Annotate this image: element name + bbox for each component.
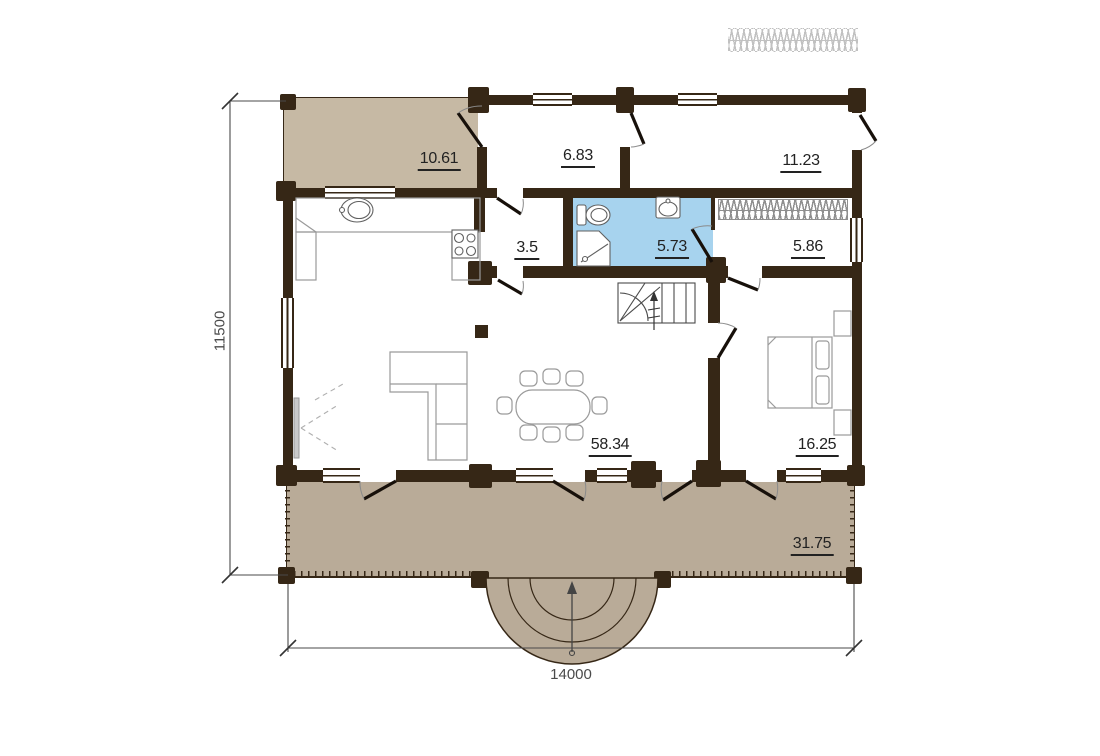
window [533, 93, 572, 106]
room-area-label: 58.34 [589, 436, 632, 457]
terrace-top-floor [283, 97, 478, 188]
door-leaf [718, 328, 736, 358]
wall-segment [585, 470, 597, 482]
room-area-label: 3.5 [514, 239, 539, 260]
log-post [616, 87, 634, 113]
log-post [696, 460, 721, 487]
wall-segment [711, 197, 715, 230]
log-post [278, 567, 295, 584]
tv [294, 384, 343, 458]
bathroom-floor [573, 197, 713, 266]
wall-segment [762, 266, 862, 278]
door-leaf [728, 278, 758, 290]
log-post [469, 464, 492, 488]
dimension-label-horizontal: 14000 [550, 666, 592, 683]
terrace-railing-bottom-right [658, 571, 854, 578]
door-leaf [631, 113, 644, 144]
room-area-label: 5.86 [791, 238, 825, 259]
log-post [280, 94, 296, 110]
entrance-steps [486, 578, 658, 664]
terrace-bottom-floor [286, 482, 855, 578]
floor-plan: 10.61 6.83 11.23 3.5 5.73 5.86 58.34 16.… [0, 0, 1100, 756]
log-post [468, 87, 489, 113]
log-post [276, 465, 297, 486]
stove [452, 230, 478, 258]
kitchen-counter [296, 198, 480, 280]
room-area-label: 6.83 [561, 147, 595, 168]
log-post [846, 567, 862, 584]
pergola-hatch [728, 28, 858, 52]
log-post [654, 571, 671, 588]
door-leaf [497, 198, 521, 214]
log-post [848, 88, 866, 112]
dining-table [497, 369, 607, 442]
window [597, 468, 627, 483]
window [850, 218, 863, 262]
dimension-vertical [222, 93, 288, 583]
log-post [276, 181, 296, 201]
wall-segment [283, 368, 293, 470]
plan-linework [0, 0, 1100, 756]
wall-segment [563, 197, 573, 268]
wall-segment [477, 147, 487, 188]
door-leaf [498, 280, 522, 294]
kitchen-sink [340, 198, 374, 222]
bed [768, 337, 832, 408]
nightstand [834, 311, 851, 336]
log-post [706, 257, 726, 283]
door-leaf [860, 115, 876, 141]
window [786, 468, 821, 483]
window [323, 468, 360, 483]
room-area-label: 5.73 [655, 238, 689, 259]
wall-segment [283, 185, 293, 298]
terrace-railing-right [850, 483, 855, 573]
log-post [471, 571, 489, 588]
sofa [390, 352, 467, 460]
wall-segment [523, 266, 711, 278]
wall-segment [474, 198, 485, 232]
dimension-label-vertical: 11500 [212, 311, 229, 352]
window [325, 186, 395, 199]
window [281, 298, 294, 368]
staircase [618, 283, 695, 330]
room-area-label: 11.23 [780, 152, 821, 173]
wall-segment [852, 150, 862, 218]
wall-segment [708, 278, 720, 323]
dimension-horizontal [280, 584, 862, 656]
wall-segment [470, 95, 862, 105]
wall-segment [523, 188, 862, 198]
wall-segment [620, 147, 630, 188]
nightstand [834, 410, 851, 435]
room-area-label: 31.75 [791, 535, 834, 556]
wall-segment [852, 262, 862, 470]
structural-column [475, 325, 488, 338]
room-area-label: 10.61 [418, 150, 461, 171]
window [516, 468, 553, 483]
wall-segment [395, 188, 497, 198]
wall-segment [396, 470, 516, 482]
log-post [468, 261, 492, 285]
wardrobe-hatch [718, 199, 848, 220]
wall-segment [708, 358, 720, 470]
log-post [631, 461, 656, 488]
wall-segment [777, 470, 786, 482]
room-area-label: 16.25 [796, 436, 839, 457]
terrace-railing-left [285, 483, 290, 573]
log-post [847, 465, 865, 486]
window [678, 93, 717, 106]
terrace-railing-bottom-left [287, 571, 480, 578]
